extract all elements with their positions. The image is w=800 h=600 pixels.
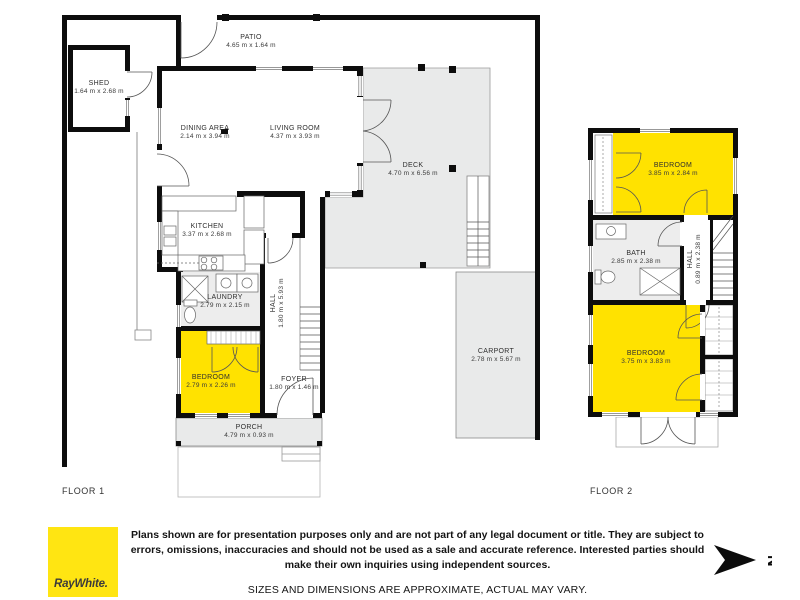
room-label-porch: PORCH4.79 m x 0.93 m [224,423,274,441]
floor2-title: FLOOR 2 [590,486,633,496]
room-dims: 3.37 m x 2.68 m [182,231,232,239]
room-name: BEDROOM [186,373,236,382]
floor1-plan [65,14,538,497]
floor2-stairs [713,216,733,295]
room-name: BATH [611,249,661,258]
room-name: KITCHEN [182,222,232,231]
room-label-foyer: FOYER1.80 m x 1.46 m [269,375,319,393]
room-label-laundry: LAUNDRY2.79 m x 2.15 m [200,293,250,311]
raywhite-wordmark: RayWhite. [54,578,108,590]
room-dims: 1.80 m x 1.46 m [269,384,319,392]
room-label-dining: DINING AREA2.14 m x 3.94 m [180,124,230,142]
room-label-bedroom2-f2: BEDROOM3.75 m x 3.83 m [621,349,671,367]
room-dims: 0.89 m x 2.38 m [695,234,703,284]
room-dims: 4.37 m x 3.93 m [270,133,320,141]
room-dims: 1.80 m x 5.93 m [278,278,286,328]
room-dims: 2.78 m x 5.67 m [471,356,521,364]
room-label-hall-f1: HALL1.80 m x 5.93 m [269,278,287,328]
dimensions-note: SIZES AND DIMENSIONS ARE APPROXIMATE, AC… [125,584,710,596]
room-dims: 1.64 m x 2.68 m [74,88,124,96]
room-dims: 2.14 m x 3.94 m [180,133,230,141]
room-name: BEDROOM [648,161,698,170]
room-label-deck: DECK4.70 m x 6.56 m [388,161,438,179]
room-dims: 2.85 m x 2.38 m [611,258,661,266]
room-label-bedroom-f1: BEDROOM2.79 m x 2.26 m [186,373,236,391]
room-dims: 2.79 m x 2.26 m [186,382,236,390]
room-label-carport: CARPORT2.78 m x 5.67 m [471,347,521,365]
room-name: SHED [74,79,124,88]
room-name: LIVING ROOM [270,124,320,133]
room-name: PATIO [226,33,276,42]
room-dims: 3.85 m x 2.84 m [648,170,698,178]
room-name: HALL [269,278,278,328]
footer-text-block: Plans shown are for presentation purpose… [125,528,710,596]
room-name: LAUNDRY [200,293,250,302]
room-dims: 4.79 m x 0.93 m [224,432,274,440]
room-label-kitchen: KITCHEN3.37 m x 2.68 m [182,222,232,240]
room-dims: 2.79 m x 2.15 m [200,302,250,310]
room-label-patio: PATIO4.65 m x 1.64 m [226,33,276,51]
room-dims: 4.70 m x 6.56 m [388,170,438,178]
room-dims: 4.65 m x 1.64 m [226,42,276,50]
disclaimer-text: Plans shown are for presentation purpose… [125,528,710,574]
room-label-bath: BATH2.85 m x 2.38 m [611,249,661,267]
north-arrow-icon: N [714,542,772,582]
floor1-title: FLOOR 1 [62,486,105,496]
floorplan-page: SHED1.64 m x 2.68 m PATIO4.65 m x 1.64 m… [0,0,800,600]
compass-letter: N [764,555,772,567]
room-label-hall-f2: HALL0.89 m x 2.38 m [686,234,704,284]
room-dims: 3.75 m x 3.83 m [621,358,671,366]
room-name: DINING AREA [180,124,230,133]
room-name: FOYER [269,375,319,384]
room-label-shed: SHED1.64 m x 2.68 m [74,79,124,97]
room-label-bedroom1-f2: BEDROOM3.85 m x 2.84 m [648,161,698,179]
room-name: CARPORT [471,347,521,356]
room-name: DECK [388,161,438,170]
raywhite-logo: RayWhite. [48,527,118,597]
room-name: BEDROOM [621,349,671,358]
room-name: HALL [686,234,695,284]
room-name: PORCH [224,423,274,432]
room-label-living: LIVING ROOM4.37 m x 3.93 m [270,124,320,142]
